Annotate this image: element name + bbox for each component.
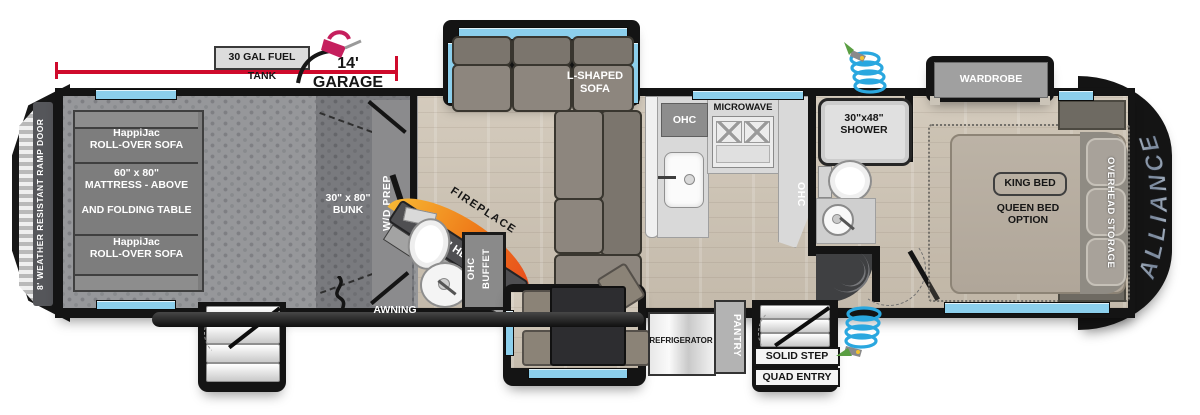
window-garage-bottom	[96, 300, 176, 310]
happijac-bottom-label: HappiJac ROLL-OVER SOFA	[75, 236, 198, 261]
bath-toilet	[828, 160, 872, 202]
garage-step	[206, 363, 280, 382]
buffet-label: BUFFET	[481, 236, 497, 302]
garage-step	[206, 344, 280, 363]
pantry-label: PANTRY	[716, 304, 742, 366]
bunk-label: 30" x 80" BUNK	[316, 192, 380, 217]
sofa-back-cushion	[512, 36, 572, 66]
sofa-chaise-cushion	[554, 110, 604, 200]
queen-option-label: QUEEN BED OPTION	[978, 202, 1078, 227]
kitchen-sink-drain	[684, 174, 695, 185]
sofa-block-bottom-cap	[75, 274, 198, 290]
window-garage-top	[95, 89, 177, 100]
sofa-block-div1	[75, 162, 198, 164]
power-cord-icon	[330, 276, 352, 314]
alliance-logo: ALLIANCE	[1078, 60, 1190, 350]
buffet-ohc-label: OHC	[466, 238, 481, 300]
sofa-back-cushion	[452, 36, 512, 66]
sofa-seat-cushion	[452, 64, 512, 112]
sofa-back-cushion	[572, 36, 634, 66]
refrigerator-label: REFRIGERATOR	[648, 336, 714, 345]
window-kitchen-top	[692, 90, 804, 100]
wardrobe: WARDROBE	[934, 62, 1048, 98]
awning-label: AWNING	[352, 304, 438, 316]
microwave-label: MICROWAVE	[705, 102, 781, 113]
entry-step-label: SOLID STEP	[754, 347, 840, 366]
happijac-top-label: HappiJac ROLL-OVER SOFA	[75, 127, 198, 152]
sofa-chaise-arm	[600, 110, 642, 256]
king-bed-label: KING BED	[993, 172, 1067, 196]
fuel-nozzle-icon	[288, 26, 364, 84]
bath-wall-left	[808, 96, 816, 256]
entry-quad-label: QUAD ENTRY	[754, 368, 840, 387]
stove-drawer	[716, 145, 770, 163]
kitchen-ohc-left: OHC	[661, 103, 708, 137]
burner	[744, 121, 770, 143]
stove	[712, 116, 774, 168]
kitchen-faucet	[658, 176, 676, 179]
ramp-door-label: 8' WEATHER RESISTANT RAMP DOOR	[35, 104, 52, 304]
hose-coil-icon-bottom	[832, 300, 890, 370]
alliance-logo-text: ALLIANCE	[1133, 128, 1173, 283]
shower-label: 30"x48" SHOWER	[818, 112, 910, 137]
window-dinette-slide-bottom	[528, 368, 628, 379]
kitchen-ohc-right: OHC	[783, 150, 807, 238]
burner	[716, 121, 742, 143]
hose-coil-icon-top	[842, 28, 894, 94]
sofa-chaise-cushion	[554, 198, 604, 254]
mattress-label: 60" x 80" MATTRESS - ABOVE AND FOLDING T…	[75, 167, 198, 217]
l-shaped-sofa-label: L-SHAPED SOFA	[556, 70, 634, 96]
svg-text:ALLIANCE: ALLIANCE	[1133, 128, 1173, 283]
floorplan-canvas: 8' WEATHER RESISTANT RAMP DOOR W/D PREP …	[0, 0, 1200, 415]
garage-dimension-tick-left	[55, 62, 58, 79]
